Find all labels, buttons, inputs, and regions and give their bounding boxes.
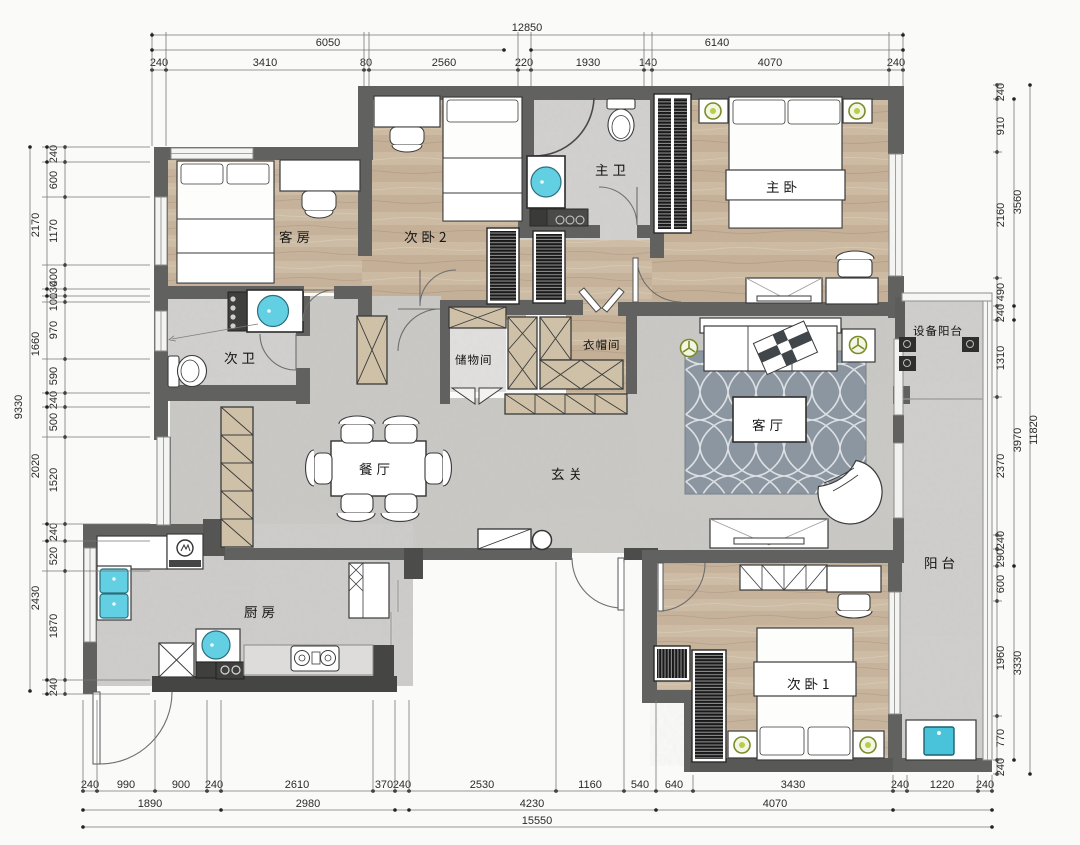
- svg-text:220: 220: [515, 57, 533, 69]
- svg-text:1960: 1960: [995, 646, 1007, 670]
- svg-text:1890: 1890: [138, 798, 162, 810]
- svg-text:2530: 2530: [470, 779, 494, 791]
- svg-text:140: 140: [639, 57, 657, 69]
- svg-text:2160: 2160: [995, 203, 1007, 227]
- svg-text:3970: 3970: [1012, 428, 1024, 452]
- svg-text:80: 80: [360, 57, 372, 69]
- svg-text:240: 240: [205, 779, 223, 791]
- svg-text:600: 600: [995, 575, 1007, 593]
- svg-text:12850: 12850: [512, 22, 543, 34]
- svg-text:1160: 1160: [578, 779, 602, 791]
- svg-text:240: 240: [995, 83, 1007, 101]
- svg-text:240: 240: [976, 779, 994, 791]
- svg-text:590: 590: [48, 367, 60, 385]
- svg-text:4230: 4230: [520, 798, 544, 810]
- svg-text:600: 600: [48, 171, 60, 189]
- svg-text:1660: 1660: [30, 332, 42, 356]
- svg-text:2980: 2980: [296, 798, 320, 810]
- svg-text:3410: 3410: [253, 57, 277, 69]
- svg-text:6050: 6050: [316, 37, 340, 49]
- svg-text:640: 640: [665, 779, 683, 791]
- svg-text:240: 240: [48, 678, 60, 696]
- svg-text:1870: 1870: [48, 614, 60, 638]
- svg-text:240: 240: [48, 391, 60, 409]
- svg-text:290: 290: [995, 549, 1007, 567]
- svg-text:240: 240: [393, 779, 411, 791]
- svg-text:2370: 2370: [995, 454, 1007, 478]
- svg-text:970: 970: [48, 321, 60, 339]
- svg-text:520: 520: [48, 547, 60, 565]
- svg-text:240: 240: [150, 57, 168, 69]
- svg-text:1170: 1170: [48, 219, 60, 243]
- svg-text:1310: 1310: [995, 346, 1007, 370]
- svg-text:2610: 2610: [285, 779, 309, 791]
- svg-text:240: 240: [995, 531, 1007, 549]
- svg-text:240: 240: [995, 758, 1007, 776]
- svg-text:3330: 3330: [1012, 651, 1024, 675]
- svg-text:11820: 11820: [1028, 415, 1040, 445]
- svg-text:2560: 2560: [432, 57, 456, 69]
- svg-text:240: 240: [48, 145, 60, 163]
- svg-text:900: 900: [172, 779, 190, 791]
- svg-text:1930: 1930: [576, 57, 600, 69]
- svg-text:240: 240: [887, 57, 905, 69]
- svg-text:6140: 6140: [705, 37, 729, 49]
- svg-text:240: 240: [48, 523, 60, 541]
- svg-text:540: 540: [631, 779, 649, 791]
- svg-text:1520: 1520: [48, 468, 60, 492]
- svg-text:770: 770: [995, 729, 1007, 747]
- svg-text:4070: 4070: [763, 798, 787, 810]
- svg-text:370: 370: [375, 779, 393, 791]
- svg-text:490: 490: [995, 283, 1007, 301]
- svg-text:3560: 3560: [1012, 190, 1024, 214]
- svg-text:1220: 1220: [930, 779, 954, 791]
- svg-text:500: 500: [48, 413, 60, 431]
- svg-text:4070: 4070: [758, 57, 782, 69]
- svg-text:3430: 3430: [781, 779, 805, 791]
- svg-text:990: 990: [117, 779, 135, 791]
- svg-text:15550: 15550: [522, 815, 553, 827]
- svg-text:2170: 2170: [30, 213, 42, 237]
- svg-text:240: 240: [995, 304, 1007, 322]
- svg-text:240: 240: [891, 779, 909, 791]
- svg-text:9330: 9330: [13, 395, 25, 419]
- svg-text:240: 240: [81, 779, 99, 791]
- svg-text:910: 910: [995, 117, 1007, 135]
- svg-text:2020: 2020: [30, 454, 42, 478]
- svg-text:2430: 2430: [30, 586, 42, 610]
